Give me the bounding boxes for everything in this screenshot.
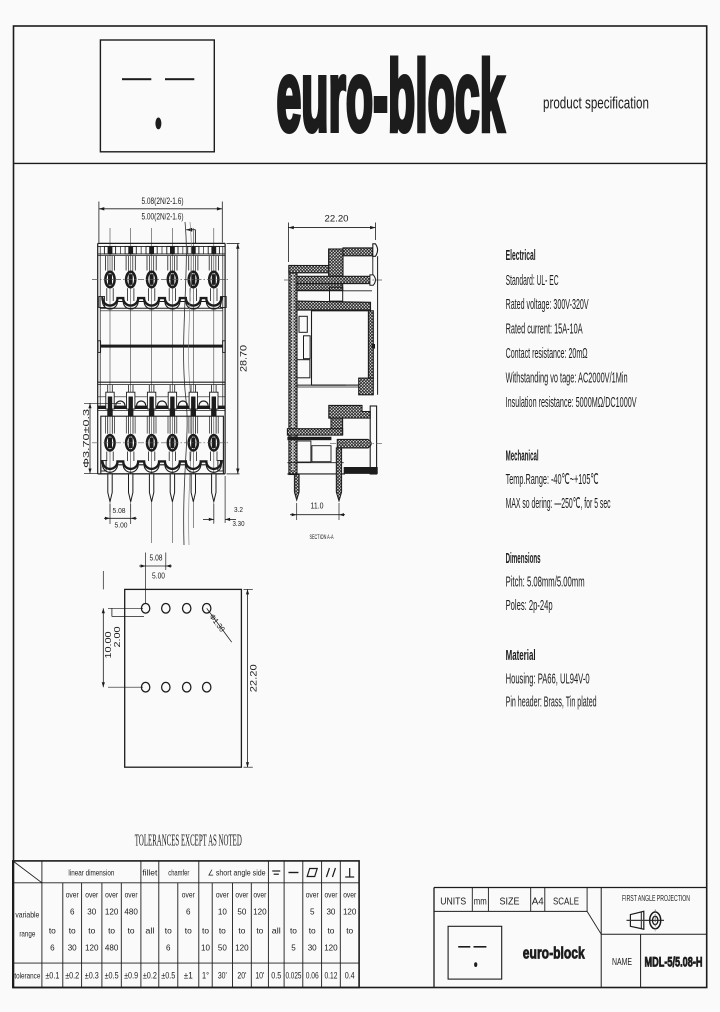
svg-text:to: to	[309, 926, 316, 936]
svg-text:to: to	[108, 926, 115, 936]
svg-text:over: over	[85, 890, 98, 900]
svg-text:5.08(2N/2-1.6): 5.08(2N/2-1.6)	[142, 196, 184, 206]
svg-text:to: to	[219, 926, 226, 936]
svg-text:0.12: 0.12	[324, 971, 337, 981]
svg-text:Poles: 2p-24p: Poles: 2p-24p	[506, 597, 553, 614]
svg-text:28.70: 28.70	[238, 345, 248, 372]
svg-text:product specification: product specification	[543, 93, 649, 112]
svg-text:120: 120	[85, 943, 99, 953]
svg-text:0.06: 0.06	[306, 971, 319, 981]
svg-text:euro-block: euro-block	[277, 41, 505, 153]
svg-text:euro-block: euro-block	[523, 944, 585, 963]
svg-text:10: 10	[218, 907, 227, 917]
svg-text:480: 480	[105, 943, 119, 953]
svg-text:all: all	[145, 926, 154, 936]
svg-text:all: all	[272, 926, 281, 936]
svg-text:over: over	[235, 890, 248, 900]
svg-text:Pitch: 5.08mm/5.00mm: Pitch: 5.08mm/5.00mm	[506, 574, 585, 591]
svg-text:5.00: 5.00	[115, 521, 128, 530]
svg-text:30: 30	[326, 907, 335, 917]
svg-text:±0.5: ±0.5	[161, 971, 175, 981]
svg-text:MAX so dering: —250℃, for 5 se: MAX so dering: —250℃, for 5 sec	[506, 495, 611, 512]
svg-text:6: 6	[50, 943, 55, 953]
svg-text:over: over	[182, 890, 195, 900]
svg-text:over: over	[253, 890, 266, 900]
svg-text:FIRST ANGLE PROJECTION: FIRST ANGLE PROJECTION	[622, 894, 690, 903]
svg-text:50: 50	[218, 943, 227, 953]
svg-text:Withstanding vo tage: AC2000V/: Withstanding vo tage: AC2000V/1Min	[506, 370, 628, 387]
svg-text:to: to	[49, 926, 56, 936]
svg-text:over: over	[105, 890, 118, 900]
svg-text:120: 120	[105, 907, 119, 917]
svg-text:10.00: 10.00	[104, 631, 113, 659]
svg-text:Housing: PA66, UL94V-0: Housing: PA66, UL94V-0	[506, 671, 590, 688]
svg-text:to: to	[88, 926, 95, 936]
svg-text:6: 6	[70, 907, 75, 917]
svg-text:±0.2: ±0.2	[143, 971, 157, 981]
svg-text:tolerance: tolerance	[14, 972, 40, 981]
svg-text:10: 10	[201, 943, 210, 953]
svg-text:6: 6	[166, 943, 171, 953]
svg-text:SIZE: SIZE	[500, 897, 520, 908]
svg-text:mm: mm	[474, 897, 487, 908]
svg-text:0.5: 0.5	[271, 971, 281, 981]
svg-text:MDL-5/5.08-H: MDL-5/5.08-H	[645, 955, 703, 970]
svg-text:over: over	[125, 890, 138, 900]
svg-text:over: over	[306, 890, 319, 900]
svg-text:0.025: 0.025	[285, 971, 301, 981]
svg-text:to: to	[185, 926, 192, 936]
svg-text:30': 30'	[218, 971, 227, 981]
svg-text:SCALE: SCALE	[553, 897, 579, 908]
svg-text:6: 6	[186, 907, 191, 917]
svg-text:Mechanical: Mechanical	[506, 448, 539, 465]
svg-text:Electrical: Electrical	[506, 247, 536, 264]
svg-text:range: range	[19, 929, 35, 939]
svg-text:22.20: 22.20	[248, 664, 258, 692]
svg-text:over: over	[216, 890, 229, 900]
svg-text:to: to	[202, 926, 209, 936]
svg-text:to: to	[128, 926, 135, 936]
svg-text:3.30: 3.30	[233, 519, 245, 528]
svg-text:Standard: UL- EC: Standard: UL- EC	[506, 272, 559, 289]
svg-text:chamfer: chamfer	[168, 869, 189, 878]
svg-text:TOLERANCES EXCEPT AS NOTED: TOLERANCES EXCEPT AS NOTED	[135, 831, 242, 850]
svg-text:20': 20'	[237, 971, 246, 981]
svg-text:A4: A4	[532, 897, 544, 908]
svg-text:50: 50	[237, 907, 246, 917]
svg-text:SECTION A-A: SECTION A-A	[310, 534, 334, 541]
svg-text:5.08: 5.08	[113, 506, 126, 515]
svg-text:to: to	[327, 926, 334, 936]
svg-text:UNITS: UNITS	[440, 897, 466, 908]
svg-text:Dimensions: Dimensions	[506, 550, 541, 567]
svg-text:±1: ±1	[184, 971, 193, 981]
svg-text:∠ short angle side: ∠ short angle side	[208, 869, 266, 878]
svg-text:±0.9: ±0.9	[124, 971, 138, 981]
svg-text:to: to	[165, 926, 172, 936]
svg-text:±0.2: ±0.2	[65, 971, 79, 981]
svg-text:1°: 1°	[202, 971, 209, 981]
svg-text:±0.5: ±0.5	[105, 971, 119, 981]
svg-text:over: over	[324, 890, 337, 900]
svg-text:30: 30	[308, 943, 317, 953]
svg-text:over: over	[66, 890, 79, 900]
svg-text:30: 30	[87, 907, 96, 917]
svg-text:to: to	[290, 926, 297, 936]
svg-text:120: 120	[253, 907, 267, 917]
svg-text:Contact resistance: 20mΩ: Contact resistance: 20mΩ	[506, 345, 588, 362]
svg-text:to: to	[238, 926, 245, 936]
svg-text:480: 480	[124, 907, 138, 917]
svg-text:Temp.Range: -40℃~+105℃: Temp.Range: -40℃~+105℃	[506, 471, 599, 488]
svg-text:linear dimension: linear dimension	[68, 869, 114, 878]
svg-text:to: to	[346, 926, 353, 936]
svg-text:120: 120	[235, 943, 249, 953]
svg-text:Insulation resistance: 5000MΩ/: Insulation resistance: 5000MΩ/DC1000V	[506, 394, 637, 411]
svg-text:Material: Material	[506, 647, 536, 664]
svg-text:2.00: 2.00	[113, 626, 122, 648]
svg-text:variable: variable	[15, 910, 39, 920]
svg-text:5: 5	[310, 907, 315, 917]
svg-text:5.00: 5.00	[152, 572, 165, 581]
svg-text:Φ3.70±0.3: Φ3.70±0.3	[82, 408, 91, 468]
svg-text:30: 30	[68, 943, 77, 953]
svg-text:5.00(2N/2-1.6): 5.00(2N/2-1.6)	[142, 212, 184, 222]
svg-text:11.0: 11.0	[311, 502, 324, 511]
svg-text:Rated current: 15A-10A: Rated current: 15A-10A	[506, 321, 583, 338]
svg-text:120: 120	[343, 907, 357, 917]
svg-text:over: over	[343, 890, 356, 900]
svg-text:Pin header: Brass, Tin plated: Pin header: Brass, Tin plated	[506, 694, 597, 711]
svg-text:to: to	[256, 926, 263, 936]
svg-text:NAME: NAME	[612, 957, 632, 968]
svg-text:5.08: 5.08	[150, 554, 163, 563]
svg-text:22.20: 22.20	[325, 214, 349, 224]
svg-text:fillet: fillet	[142, 869, 158, 878]
svg-text:±0.1: ±0.1	[45, 971, 59, 981]
svg-text:120: 120	[324, 943, 338, 953]
svg-text:0.4: 0.4	[345, 971, 355, 981]
svg-text:3.2: 3.2	[234, 505, 243, 514]
svg-text:Rated voltage: 300V-320V: Rated voltage: 300V-320V	[506, 296, 589, 313]
svg-text:±0.3: ±0.3	[85, 971, 99, 981]
svg-text:to: to	[69, 926, 76, 936]
svg-text:5: 5	[291, 943, 296, 953]
svg-text:10': 10'	[255, 971, 264, 981]
